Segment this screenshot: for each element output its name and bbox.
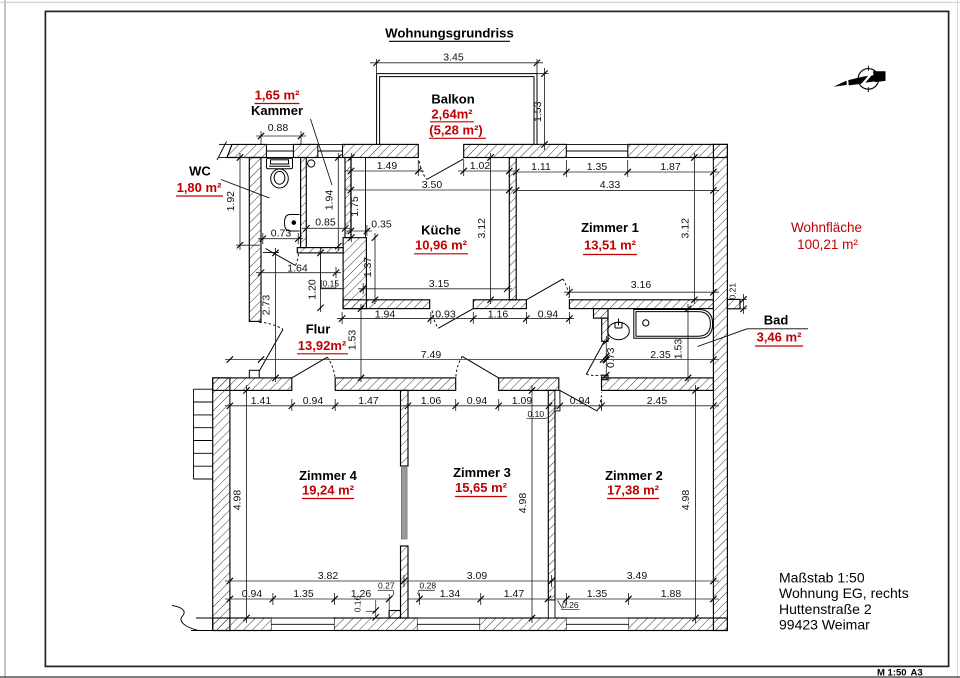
svg-text:Wohnfläche: Wohnfläche [791,220,862,235]
svg-text:1.75: 1.75 [349,196,361,217]
svg-text:3.09: 3.09 [467,570,488,582]
svg-text:Huttenstraße 2: Huttenstraße 2 [779,601,872,617]
svg-text:0.94: 0.94 [570,395,591,407]
svg-text:Zimmer 1: Zimmer 1 [581,220,639,235]
svg-text:Wohnung EG, rechts: Wohnung EG, rechts [779,585,909,601]
svg-text:0.94: 0.94 [242,588,263,600]
svg-text:1.88: 1.88 [661,588,682,600]
svg-text:3.45: 3.45 [443,52,464,64]
svg-text:2,64m²: 2,64m² [431,107,473,122]
svg-text:13,92m²: 13,92m² [298,338,347,353]
svg-text:1.35: 1.35 [293,588,314,600]
svg-text:0.26: 0.26 [562,600,579,610]
svg-text:1.94: 1.94 [375,308,396,320]
svg-text:Maßstab 1:50: Maßstab 1:50 [779,570,865,586]
svg-text:1.35: 1.35 [587,588,608,600]
svg-text:0.15: 0.15 [323,278,340,288]
svg-text:3.16: 3.16 [631,279,652,291]
svg-text:Zimmer 4: Zimmer 4 [299,468,358,483]
svg-text:0.28: 0.28 [420,581,437,591]
svg-text:1.37: 1.37 [362,257,374,278]
svg-text:Küche: Küche [421,223,461,238]
svg-text:1.34: 1.34 [440,588,461,600]
svg-text:15,65 m²: 15,65 m² [455,480,508,495]
svg-text:0.94: 0.94 [303,395,324,407]
svg-text:4.98: 4.98 [680,490,692,511]
svg-text:0.73: 0.73 [271,228,292,240]
svg-text:A3: A3 [911,668,923,678]
svg-text:3.50: 3.50 [422,179,443,191]
svg-text:1.47: 1.47 [358,395,379,407]
svg-text:1.53: 1.53 [347,330,359,351]
svg-text:1.87: 1.87 [660,161,681,173]
svg-text:1.09: 1.09 [512,395,533,407]
svg-text:1.35: 1.35 [587,161,608,173]
svg-text:10,96 m²: 10,96 m² [415,238,468,253]
svg-text:0.21: 0.21 [728,283,738,300]
svg-text:1,80 m²: 1,80 m² [177,180,222,195]
svg-text:1.47: 1.47 [504,588,525,600]
svg-text:3,46 m²: 3,46 m² [757,330,802,345]
svg-text:0.88: 0.88 [268,122,289,134]
svg-text:3.12: 3.12 [680,218,692,239]
svg-text:2.35: 2.35 [650,349,671,361]
svg-text:7.49: 7.49 [421,349,442,361]
svg-text:0.35: 0.35 [371,218,392,230]
svg-text:3.82: 3.82 [318,570,339,582]
svg-text:100,21 m²: 100,21 m² [797,237,858,252]
svg-text:1.94: 1.94 [324,190,336,211]
svg-text:Zimmer 2: Zimmer 2 [605,468,663,483]
svg-text:1.92: 1.92 [225,191,237,212]
svg-text:4.98: 4.98 [231,490,243,511]
svg-text:0.27: 0.27 [378,581,395,591]
svg-text:2.45: 2.45 [647,395,668,407]
svg-text:0.94: 0.94 [538,308,559,320]
svg-text:Flur: Flur [306,322,331,337]
svg-text:1.11: 1.11 [531,161,551,173]
svg-text:1.16: 1.16 [488,308,509,320]
svg-text:1.41: 1.41 [251,395,272,407]
svg-text:1.20: 1.20 [306,279,318,300]
svg-text:1,65 m²: 1,65 m² [255,88,300,103]
svg-text:WC: WC [189,164,211,179]
svg-text:19,24 m²: 19,24 m² [302,483,355,498]
svg-text:(5,28 m²): (5,28 m²) [429,123,482,138]
svg-text:Zimmer 3: Zimmer 3 [453,465,511,480]
svg-text:Balkon: Balkon [431,92,474,107]
svg-text:0.85: 0.85 [315,216,336,228]
svg-text:2.73: 2.73 [260,295,272,316]
svg-text:0.94: 0.94 [467,395,488,407]
svg-text:99423 Weimar: 99423 Weimar [779,617,870,633]
svg-text:1.49: 1.49 [377,160,398,172]
svg-text:1.02: 1.02 [470,160,491,172]
svg-text:4.33: 4.33 [600,179,621,191]
svg-text:1.64: 1.64 [287,262,308,274]
svg-text:0.93: 0.93 [435,308,456,320]
svg-text:0.73: 0.73 [605,347,617,368]
svg-text:Kammer: Kammer [251,103,303,118]
svg-text:3.12: 3.12 [476,218,488,239]
svg-text:M 1:50: M 1:50 [877,668,907,678]
svg-text:13,51 m²: 13,51 m² [584,238,637,253]
svg-text:1.06: 1.06 [421,395,442,407]
svg-text:0.16: 0.16 [353,595,363,612]
svg-text:0.10: 0.10 [528,409,545,419]
svg-text:3.15: 3.15 [429,278,450,290]
svg-text:Bad: Bad [764,313,789,328]
svg-text:4.98: 4.98 [517,493,529,514]
svg-text:1.53: 1.53 [673,339,685,360]
svg-text:17,38 m²: 17,38 m² [607,483,660,498]
svg-text:Wohnungsgrundriss: Wohnungsgrundriss [385,26,514,41]
svg-text:1.53: 1.53 [532,101,544,122]
svg-text:3.49: 3.49 [627,570,648,582]
